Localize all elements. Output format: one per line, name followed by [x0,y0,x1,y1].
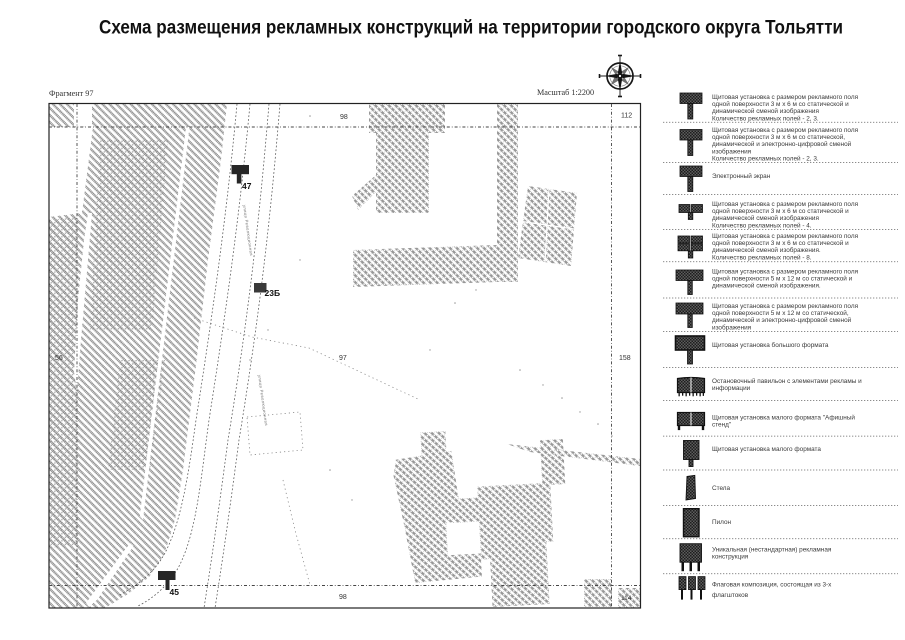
svg-text:98: 98 [339,594,347,601]
svg-text:улица Революционная: улица Революционная [242,204,254,256]
svg-text:одной поверхности 3 м х 6 м со: одной поверхности 3 м х 6 м со статическ… [712,100,849,108]
svg-text:45: 45 [170,587,180,597]
svg-text:флагштоков: флагштоков [712,592,749,599]
svg-text:одной поверхности 3 м х 6 м со: одной поверхности 3 м х 6 м со статическ… [712,239,849,247]
svg-text:Электронный экран: Электронный экран [712,172,771,180]
svg-text:конструкция: конструкция [712,554,749,561]
svg-text:158: 158 [619,355,631,362]
svg-text:динамической и электронно-цифр: динамической и электронно-цифровой смено… [712,140,852,148]
svg-text:динамической сменой изображени: динамической сменой изображения. [712,246,821,254]
svg-text:114: 114 [621,595,632,602]
svg-text:Остановочный павильон с элемен: Остановочный павильон с элементами рекла… [712,377,862,385]
svg-text:улица Революционная: улица Революционная [257,374,269,426]
svg-text:Щитовая установка большого фор: Щитовая установка большого формата [712,341,829,349]
svg-text:Щитовая установка с размером р: Щитовая установка с размером рекламного … [712,94,859,101]
svg-text:112: 112 [621,113,632,120]
svg-text:изображения: изображения [712,147,752,155]
svg-text:97: 97 [339,355,347,362]
svg-text:23Б: 23Б [265,288,281,298]
svg-text:одной поверхности 5 м х 12 м с: одной поверхности 5 м х 12 м со статичес… [712,275,853,283]
svg-text:98: 98 [340,114,348,121]
svg-text:Количество рекламных полей - 8: Количество рекламных полей - 8. [712,253,812,261]
svg-text:одной поверхности 3 м х 6 м со: одной поверхности 3 м х 6 м со статическ… [712,207,849,215]
svg-text:56: 56 [55,355,63,362]
svg-text:изображения: изображения [712,323,752,331]
svg-text:Количество рекламных полей - 2: Количество рекламных полей - 2, 3. [712,155,819,163]
svg-text:Щитовая установка с размером р: Щитовая установка с размером рекламного … [712,268,859,275]
svg-text:одной поверхности 3 м х 6 м со: одной поверхности 3 м х 6 м со статическ… [712,133,845,141]
svg-text:динамической сменой изображени: динамической сменой изображения [712,107,819,115]
svg-text:Масштаб 1:2200: Масштаб 1:2200 [537,88,594,97]
svg-text:Щитовая установка с размером р: Щитовая установка с размером рекламного … [712,233,859,240]
svg-text:Флаговая композиция, состоящая: Флаговая композиция, состоящая из 3-х [712,582,832,589]
svg-text:Щитовая установка с размером р: Щитовая установка с размером рекламного … [712,201,859,208]
svg-text:информации: информации [712,385,751,392]
svg-text:Уникальная (нестандартная) рек: Уникальная (нестандартная) рекламная [712,546,832,553]
svg-text:47: 47 [242,181,252,191]
svg-text:Щитовая установка малого форма: Щитовая установка малого формата "Афишны… [712,413,855,421]
svg-text:Количество рекламных полей - 2: Количество рекламных полей - 2, 3. [712,114,819,122]
svg-text:Фрагмент 97: Фрагмент 97 [49,89,93,98]
svg-text:Щитовая установка с размером р: Щитовая установка с размером рекламного … [712,303,859,310]
svg-text:Схема размещения рекламных кон: Схема размещения рекламных конструкций н… [99,17,843,39]
svg-text:Количество рекламных полей - 4: Количество рекламных полей - 4. [712,221,812,229]
svg-text:Пилон: Пилон [712,519,732,526]
svg-text:динамической и электронно-цифр: динамической и электронно-цифровой смено… [712,316,852,324]
svg-text:динамической сменой изображени: динамической сменой изображения. [712,282,821,290]
svg-text:Щитовая установка с размером р: Щитовая установка с размером рекламного … [712,127,859,134]
svg-text:динамической сменой изображени: динамической сменой изображения [712,214,819,222]
svg-text:Стела: Стела [712,485,731,492]
svg-text:Щитовая установка малого форма: Щитовая установка малого формата [712,446,821,453]
svg-text:стенд": стенд" [712,422,731,429]
svg-text:одной поверхности 5 м х 12 м с: одной поверхности 5 м х 12 м со статичес… [712,309,849,317]
